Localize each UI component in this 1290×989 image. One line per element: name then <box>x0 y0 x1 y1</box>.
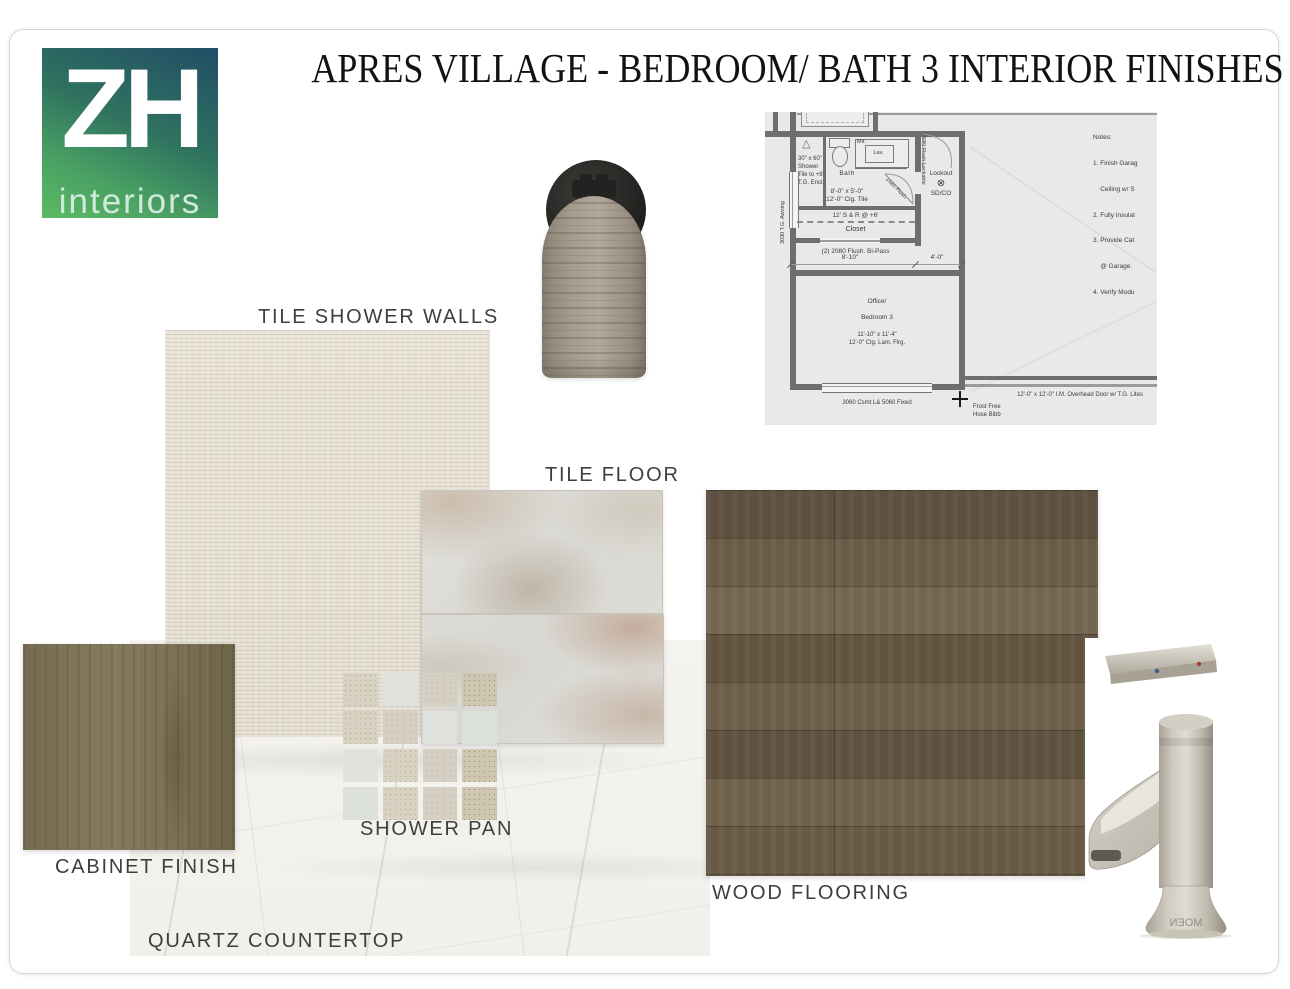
label-wood-flooring: WOOD FLOORING <box>712 882 910 905</box>
mood-board: ZH interiors APRES VILLAGE - BEDROOM/ BA… <box>0 0 1290 989</box>
faucet-image: MOEN <box>1085 638 1270 940</box>
label-tile-floor: TILE FLOOR <box>545 464 680 487</box>
label-quartz-countertop: QUARTZ COUNTERTOP <box>148 930 405 953</box>
sconce-ceramic-shade <box>542 196 646 378</box>
shower-pan-tile <box>423 787 458 820</box>
shower-pan-tile <box>462 673 497 706</box>
shower-pan-tile <box>343 749 378 782</box>
shower-pan-sample <box>343 673 497 820</box>
logo-wordmark: interiors <box>42 182 218 222</box>
shower-pan-tile <box>462 787 497 820</box>
faucet-body <box>1159 722 1213 888</box>
plan-arcs <box>765 112 1157 425</box>
logo-monogram: ZH <box>42 44 218 174</box>
shower-pan-tile <box>462 749 497 782</box>
label-cabinet-finish: CABINET FINISH <box>55 856 238 879</box>
shower-pan-tile <box>423 673 458 706</box>
cabinet-finish-sample <box>23 644 235 850</box>
shower-pan-tile <box>343 711 378 744</box>
cold-indicator-dot <box>1155 669 1159 673</box>
label-shower-pan: SHOWER PAN <box>360 818 513 841</box>
shower-pan-tile <box>343 673 378 706</box>
page-title: APRES VILLAGE - BEDROOM/ BATH 3 INTERIOR… <box>311 44 1209 92</box>
tile-floor-sample-1 <box>421 490 663 614</box>
shower-pan-tile <box>423 711 458 744</box>
label-tile-shower-walls: TILE SHOWER WALLS <box>258 306 499 329</box>
floor-plan: Lav. Mir. △ 30" x 60" Shower Tile to +8'… <box>765 112 1157 425</box>
shower-pan-tile <box>423 749 458 782</box>
shower-pan-tile <box>462 711 497 744</box>
shower-pan-tile <box>383 673 418 706</box>
hot-indicator-dot <box>1197 662 1201 666</box>
faucet-spout-mouth <box>1091 850 1121 861</box>
zh-interiors-logo: ZH interiors <box>42 48 218 218</box>
shower-pan-tile <box>343 787 378 820</box>
shower-pan-tile <box>383 749 418 782</box>
faucet-brand-mark: MOEN <box>1169 917 1202 929</box>
wood-flooring-sample <box>706 490 1098 876</box>
wall-sconce-image <box>524 150 704 390</box>
shower-pan-tile <box>383 787 418 820</box>
shower-pan-tile <box>383 711 418 744</box>
